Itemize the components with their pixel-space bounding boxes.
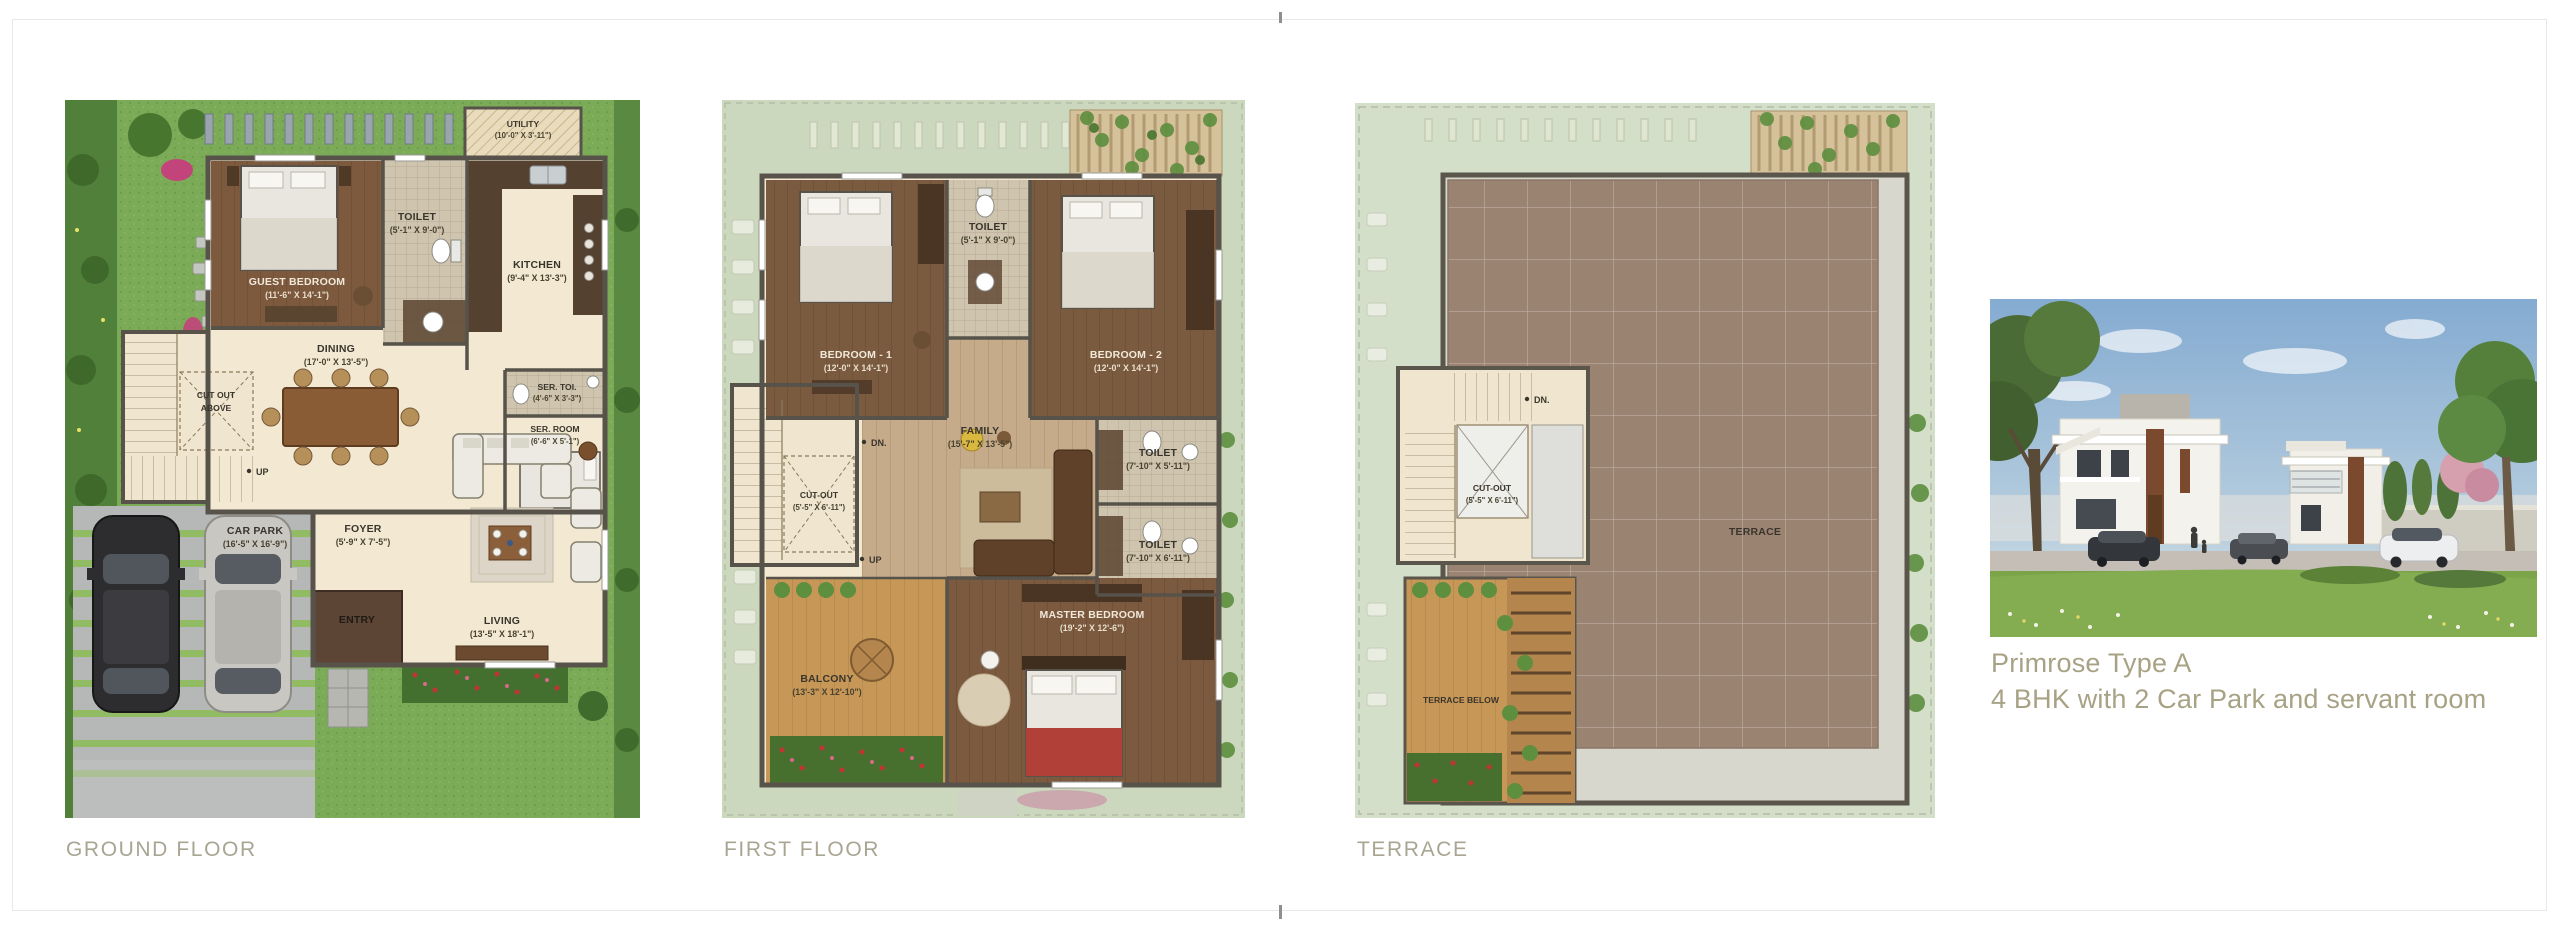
page-divider-tick-top xyxy=(1279,12,1282,23)
bedroom1-label: BEDROOM - 1 xyxy=(820,349,892,361)
bedroom2-label: BEDROOM - 2 xyxy=(1090,349,1162,361)
toilet-label: TOILET xyxy=(398,211,437,223)
listing-caption: Primrose Type A 4 BHK with 2 Car Park an… xyxy=(1991,646,2486,717)
listing-subtitle: 4 BHK with 2 Car Park and servant room xyxy=(1991,682,2486,717)
stair-block: DN. CUT-OUT (5'-5" X 6'-11") xyxy=(1398,368,1588,563)
living-dim: (13'-5" X 18'-1") xyxy=(470,629,534,639)
utility-label: UTILITY xyxy=(507,119,540,129)
ground-floor-plan: UTILITY (10'-0" X 3'-11") TOILET (5'-1" … xyxy=(65,100,640,818)
terrace-caption: TERRACE xyxy=(1357,838,1469,862)
dining-dim: (17'-0" X 13'-5") xyxy=(304,357,368,367)
ground-floor-plan-image: UTILITY (10'-0" X 3'-11") TOILET (5'-1" … xyxy=(65,100,640,818)
terrace-below-area: TERRACE BELOW xyxy=(1405,578,1575,803)
toilet-top-room xyxy=(947,180,1030,338)
living-label: LIVING xyxy=(484,615,520,627)
family-label: FAMILY xyxy=(961,425,1000,437)
project-photo xyxy=(1990,299,2537,637)
utility-dim: (10'-0" X 3'-11") xyxy=(495,131,552,140)
guest-bedroom-label: GUEST BEDROOM xyxy=(249,276,346,288)
foyer-dim: (5'-9" X 7'-5") xyxy=(336,537,391,547)
bed-icon xyxy=(800,192,892,302)
toilet-mid-label: TOILET xyxy=(1139,447,1178,459)
family-dim: (15'-7" X 13'-5") xyxy=(948,439,1012,449)
bed-icon xyxy=(1022,656,1126,776)
brochure-page: UTILITY (10'-0" X 3'-11") TOILET (5'-1" … xyxy=(0,0,2560,933)
bed-icon xyxy=(1062,196,1154,308)
toilet-top-label: TOILET xyxy=(969,221,1008,233)
master-bedroom-dim: (19'-2" X 12'-6") xyxy=(1060,623,1124,633)
terrace-label: TERRACE xyxy=(1729,526,1781,538)
toilet-dim: (5'-1" X 9'-0") xyxy=(390,225,445,235)
car-park-dim: (16'-5" X 16'-9") xyxy=(223,539,287,549)
toilet-room xyxy=(383,161,467,344)
dn-label: DN. xyxy=(1534,395,1550,405)
terrace-plan-image: DN. CUT-OUT (5'-5" X 6'-11") TERRACE BEL… xyxy=(1355,103,1935,818)
first-floor-caption: FIRST FLOOR xyxy=(724,838,880,862)
kitchen-dim: (9'-4" X 13'-3") xyxy=(507,273,567,283)
guest-bedroom-room xyxy=(211,161,383,328)
project-photo-image xyxy=(1990,299,2537,637)
entry-label: ENTRY xyxy=(339,614,375,626)
cutout-label-1: CUT OUT xyxy=(197,390,236,400)
toilet-mid-dim: (7'-10" X 5'-11") xyxy=(1126,461,1190,471)
bedroom1-dim: (12'-0" X 14'-1") xyxy=(824,363,888,373)
cutout-dim: (5'-5" X 6'-11") xyxy=(1466,496,1519,505)
master-bedroom-label: MASTER BEDROOM xyxy=(1040,609,1145,621)
first-floor-plan-image: BEDROOM - 1 (12'-0" X 14'-1") TOILET (5'… xyxy=(722,100,1245,818)
listing-title: Primrose Type A xyxy=(1991,646,2486,681)
servant-room-label: SER. ROOM xyxy=(530,424,579,434)
cutout-label: CUT-OUT xyxy=(1473,483,1512,493)
car-park-label: CAR PARK xyxy=(227,525,283,537)
villa-center xyxy=(2282,441,2390,544)
car-park-area xyxy=(73,506,315,818)
cutout-label-2: ABOVE xyxy=(201,403,232,413)
kitchen-label: KITCHEN xyxy=(513,259,561,271)
toilet-bottom-dim: (7'-10" X 6'-11") xyxy=(1126,553,1190,563)
dining-label: DINING xyxy=(317,343,355,355)
up-label: UP xyxy=(869,555,882,565)
servant-toilet-dim: (4'-6" X 3'-3") xyxy=(533,394,582,403)
servant-toilet-label: SER. TOI. xyxy=(538,382,577,392)
page-divider-tick-bottom xyxy=(1279,905,1282,919)
pergola xyxy=(1070,110,1222,177)
bedroom2-room xyxy=(1030,180,1219,418)
up-label: UP xyxy=(256,467,269,477)
bed-icon xyxy=(241,166,337,270)
servant-toilet-room xyxy=(505,370,605,416)
cutout-dim: (5'-5" X 6'-11") xyxy=(793,503,846,512)
terrace-plan: DN. CUT-OUT (5'-5" X 6'-11") TERRACE BEL… xyxy=(1355,103,1935,818)
terrace-below-label: TERRACE BELOW xyxy=(1423,695,1500,705)
servant-room-dim: (6'-6" X 5'-1") xyxy=(531,437,580,446)
car-dark xyxy=(87,516,185,712)
dn-label: DN. xyxy=(871,438,887,448)
lawn xyxy=(1990,566,2537,637)
pergola xyxy=(1751,111,1907,176)
cutout-label: CUT-OUT xyxy=(800,490,839,500)
toilet-bottom-label: TOILET xyxy=(1139,539,1178,551)
ground-floor-caption: GROUND FLOOR xyxy=(66,838,257,862)
bedroom1-room xyxy=(766,180,947,418)
bedroom2-dim: (12'-0" X 14'-1") xyxy=(1094,363,1158,373)
toilet-top-dim: (5'-1" X 9'-0") xyxy=(961,235,1016,245)
guest-bedroom-dim: (11'-6" X 14'-1") xyxy=(265,290,329,300)
balcony-dim: (13'-3" X 12'-10") xyxy=(792,687,861,697)
foyer-label: FOYER xyxy=(344,523,381,535)
first-floor-plan: BEDROOM - 1 (12'-0" X 14'-1") TOILET (5'… xyxy=(722,100,1245,818)
balcony-label: BALCONY xyxy=(800,673,853,685)
balcony-area xyxy=(766,578,947,785)
